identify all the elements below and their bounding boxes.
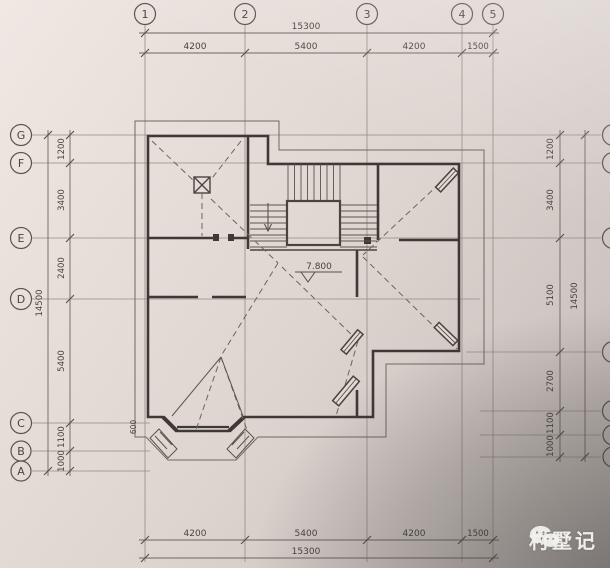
wechat-icon — [529, 525, 560, 552]
axis-label-5: 5 — [490, 8, 497, 21]
dim-label: 1500 — [467, 42, 489, 52]
grid-lines — [32, 24, 601, 562]
dim-label: 1000 — [546, 435, 556, 457]
axis-labels-left: G F E D C B A — [17, 129, 26, 478]
bay-eave-posts — [150, 429, 254, 458]
dim-label: 5400 — [57, 350, 67, 372]
level-value: 7.800 — [306, 262, 332, 272]
dim-label-total: 15300 — [292, 547, 321, 557]
dimension-lines — [48, 33, 585, 558]
dim-labels-right: 1200 3400 5100 2700 1100 1000 14500 — [546, 138, 580, 457]
axis-label-E: E — [18, 232, 25, 245]
axis-circles-right — [603, 125, 610, 468]
dim-label-total: 15300 — [292, 22, 321, 32]
watermark: 村墅记 — [529, 525, 598, 554]
axis-label-G: G — [17, 129, 26, 142]
bay-roof-hips — [172, 357, 243, 416]
dim-label: 4200 — [403, 529, 426, 539]
dim-label: 1100 — [546, 412, 556, 434]
dim-label: 4200 — [403, 42, 426, 52]
dim-labels-left: 1200 3400 2400 5400 1100 1000 14500 — [35, 138, 67, 472]
stair-treads-top — [288, 164, 340, 201]
staircase — [250, 164, 377, 250]
dim-labels-top: 4200 5400 4200 1500 15300 — [184, 22, 489, 52]
roof-hip-lines — [152, 141, 457, 430]
axis-label-4: 4 — [459, 8, 466, 21]
dim-label: 5400 — [295, 529, 318, 539]
dim-label: 1000 — [57, 450, 67, 472]
axis-label-F: F — [18, 157, 24, 170]
bay-window — [163, 417, 244, 431]
floor-plan: 7.800 600 — [129, 121, 484, 460]
axis-label-A: A — [17, 465, 25, 478]
dim-label: 4200 — [184, 529, 207, 539]
level-triangle-icon — [301, 272, 315, 282]
dim-label: 2700 — [546, 370, 556, 392]
dim-label: 1100 — [57, 426, 67, 448]
dim-label: 1200 — [546, 138, 556, 160]
axis-label-C: C — [17, 417, 25, 430]
axis-label-2: 2 — [242, 8, 249, 21]
roof-eave-outline — [135, 121, 484, 460]
dim-label: 3400 — [57, 189, 67, 211]
dim-label: 1200 — [57, 138, 67, 160]
dim-label: 3400 — [546, 189, 556, 211]
axis-labels-top: 1 2 3 4 5 — [142, 8, 497, 21]
axis-label-B: B — [17, 445, 25, 458]
blueprint-photo: 1 2 3 4 5 G F E D C B A 4200 5400 4200 1… — [0, 0, 610, 568]
axis-label-1: 1 — [142, 8, 149, 21]
chimney-flue — [194, 177, 210, 193]
dim-label: 5400 — [295, 42, 318, 52]
dim-label: 2400 — [57, 257, 67, 279]
dim-label-total: 14500 — [570, 282, 580, 309]
level-mark: 7.800 — [295, 262, 342, 282]
dimension-ticks — [44, 29, 589, 562]
roof-plan-drawing: 1 2 3 4 5 G F E D C B A 4200 5400 4200 1… — [0, 0, 610, 568]
axis-label-D: D — [17, 293, 25, 306]
dim-label: 1500 — [467, 529, 489, 539]
bay-dim-label: 600 — [129, 420, 138, 435]
dim-label: 5100 — [546, 284, 556, 306]
dim-label: 4200 — [184, 42, 207, 52]
dim-label-total: 14500 — [35, 289, 45, 316]
roof-skylights — [333, 168, 459, 406]
dim-labels-bottom: 4200 5400 4200 1500 15300 — [184, 529, 489, 557]
stair-treads-right — [340, 205, 377, 247]
axis-label-3: 3 — [364, 8, 371, 21]
